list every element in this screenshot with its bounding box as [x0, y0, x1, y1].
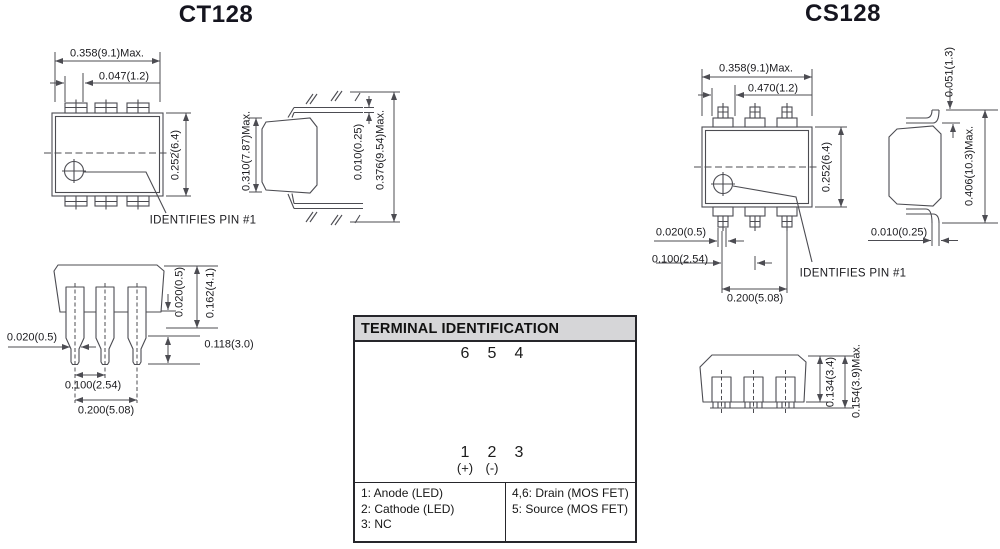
cs128-dim-lead-top: 0.051(1.3) [945, 47, 956, 97]
terminal-identification-header: TERMINAL IDENTIFICATION [355, 317, 635, 342]
ct128-dim-lead-thickness: 0.010(0.25) [354, 124, 365, 180]
legend-anode: 1: Anode (LED) [361, 486, 499, 502]
pin-label-1: 1 [461, 444, 470, 462]
ct128-dim-body-height: 0.310(7.87)Max. [242, 111, 253, 191]
terminal-legend: 1: Anode (LED) 2: Cathode (LED) 3: NC 4,… [355, 482, 635, 541]
cs128-dim-lead-thickness: 0.010(0.25) [871, 228, 927, 239]
ct128-dim-span: 0.200(5.08) [78, 406, 134, 417]
cs128-pin1-leader [733, 186, 812, 262]
legend-source: 5: Source (MOS FET) [512, 502, 629, 518]
ct128-dim-overall-height: 0.376(9.54)Max. [376, 110, 387, 190]
ct128-title: CT128 [179, 1, 254, 29]
cs128-dim-overall: 0.154(3.9)Max. [852, 344, 863, 418]
datasheet-package-drawing: CT128 CS128 0.358(9.1)Max. 0.047(1.2) 0.… [0, 0, 1000, 549]
ct128-dim-lead-length: 0.118(3.0) [204, 340, 253, 351]
legend-nc: 3: NC [361, 517, 499, 533]
cs128-dim-lead-width: 0.020(0.5) [656, 228, 706, 239]
cs128-dim-body-height: 0.134(3.4) [826, 357, 837, 407]
terminal-legend-left: 1: Anode (LED) 2: Cathode (LED) 3: NC [355, 483, 506, 541]
ct128-dim-shoulder-length: 0.162(4.1) [206, 268, 217, 318]
cs128-dim-height: 0.252(6.4) [822, 142, 833, 192]
cs128-dim-overall-height: 0.406(10.3)Max. [965, 126, 976, 206]
pin-label-4: 4 [515, 345, 524, 363]
legend-drain: 4,6: Drain (MOS FET) [512, 486, 629, 502]
cs128-dim-width: 0.358(9.1)Max. [719, 64, 793, 75]
ct128-front-view [44, 100, 171, 214]
polarity-plus: (+) [457, 461, 473, 476]
pin-label-3: 3 [515, 444, 524, 462]
ct128-dim-height: 0.252(6.4) [171, 130, 182, 180]
pin-label-6: 6 [461, 345, 470, 363]
cs128-title: CS128 [805, 0, 881, 28]
polarity-minus: (-) [486, 461, 499, 476]
cs128-front-view [694, 103, 820, 262]
pin-label-2: 2 [488, 444, 497, 462]
ct128-dim-pin-offset: 0.047(1.2) [99, 72, 149, 83]
cs128-dim-span: 0.200(5.08) [727, 294, 783, 305]
ct128-pin1-note: IDENTIFIES PIN #1 [150, 215, 257, 227]
cs128-dim-pitch: 0.100(2.54) [652, 255, 708, 266]
ct128-dim-lead-width: 0.020(0.5) [7, 333, 57, 344]
ct128-side-view [262, 91, 363, 225]
cs128-bottom-view [700, 355, 806, 413]
ct128-dim-standoff: 0.020(0.5) [175, 267, 186, 317]
cs128-pin1-note: IDENTIFIES PIN #1 [800, 268, 907, 280]
cs128-side-dimensions [868, 88, 998, 246]
terminal-legend-right: 4,6: Drain (MOS FET) 5: Source (MOS FET) [506, 483, 635, 541]
cs128-dim-pin-offset: 0.470(1.2) [748, 84, 798, 95]
pin-label-5: 5 [488, 345, 497, 363]
ct128-dim-pitch: 0.100(2.54) [65, 381, 121, 392]
cs128-side-view [889, 110, 941, 223]
legend-cathode: 2: Cathode (LED) [361, 502, 499, 518]
ct128-dim-width: 0.358(9.1)Max. [70, 49, 144, 60]
